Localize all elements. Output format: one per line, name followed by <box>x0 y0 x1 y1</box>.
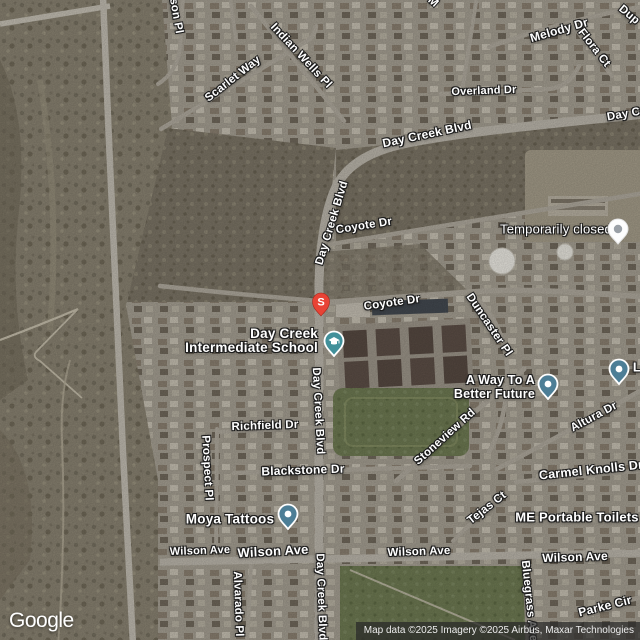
s-marker-letter: S <box>317 296 324 308</box>
satellite-imagery <box>0 0 640 640</box>
road-label: Richfield Dr <box>231 419 298 433</box>
road-label: Wilson Ave <box>387 545 450 559</box>
poi-label-me-portable-toilets[interactable]: ME Portable Toilets <box>515 510 638 525</box>
moya-tattoos-pin[interactable] <box>276 502 300 530</box>
poi-label-edge[interactable]: L <box>633 360 640 375</box>
poi-label-a-way-to-a-better-future[interactable]: A Way To A Better Future <box>454 373 535 401</box>
satellite-map[interactable]: son Pl Scarlet Way Indian Wells Pl Melod… <box>0 0 640 640</box>
poi-label-day-creek-intermediate-school[interactable]: Day Creek Intermediate School <box>185 327 318 355</box>
road-label: Wilson Ave <box>170 544 231 558</box>
road-label: Blackstone Dr <box>261 462 345 479</box>
road-label: Overland Dr <box>451 84 517 98</box>
map-attribution: Map data ©2025 Imagery ©2025 Airbus, Max… <box>356 622 640 640</box>
poi-label-moya-tattoos[interactable]: Moya Tattoos <box>186 512 274 527</box>
a-way-place-pin[interactable] <box>536 372 560 400</box>
edge-place-pin[interactable] <box>607 357 631 385</box>
poi-label-temporarily-closed[interactable]: Temporarily closed <box>500 222 612 237</box>
google-logo[interactable]: Google <box>9 609 74 633</box>
road-label: Alvarado Pl <box>231 571 245 637</box>
s-marker-pin[interactable]: S <box>310 290 332 317</box>
school-pin graduation-cap-icon[interactable] <box>322 329 346 357</box>
road-label: Wilson Ave <box>542 549 608 565</box>
temporarily-closed-pin[interactable] <box>606 217 630 245</box>
